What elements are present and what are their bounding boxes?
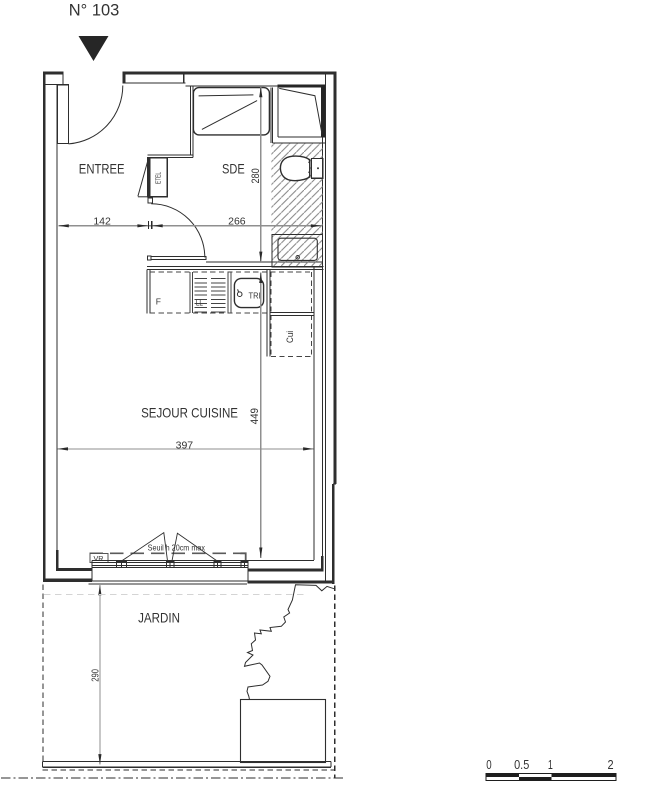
svg-text:0.5: 0.5 [514,757,529,772]
svg-text:Cui: Cui [285,331,295,343]
svg-text:N° 103: N° 103 [69,2,120,20]
svg-text:SDE: SDE [222,161,245,177]
svg-text:SEJOUR CUISINE: SEJOUR CUISINE [141,405,238,421]
svg-text:1: 1 [548,757,553,772]
svg-text:2: 2 [607,757,613,772]
svg-text:ETEL: ETEL [156,172,163,184]
svg-text:LL: LL [196,298,203,308]
svg-text:TRI: TRI [249,291,261,301]
svg-text:Seuil h 20cm max: Seuil h 20cm max [148,544,205,553]
svg-text:142: 142 [93,216,111,228]
svg-text:F: F [156,297,161,307]
svg-text:VR: VR [94,556,104,563]
svg-text:266: 266 [228,216,246,228]
svg-text:JARDIN: JARDIN [138,611,180,626]
svg-text:290: 290 [90,669,101,682]
svg-text:397: 397 [176,439,194,451]
svg-text:449: 449 [249,408,261,424]
svg-text:ENTREE: ENTREE [79,161,125,177]
svg-text:280: 280 [250,168,262,183]
svg-text:0: 0 [486,757,491,772]
